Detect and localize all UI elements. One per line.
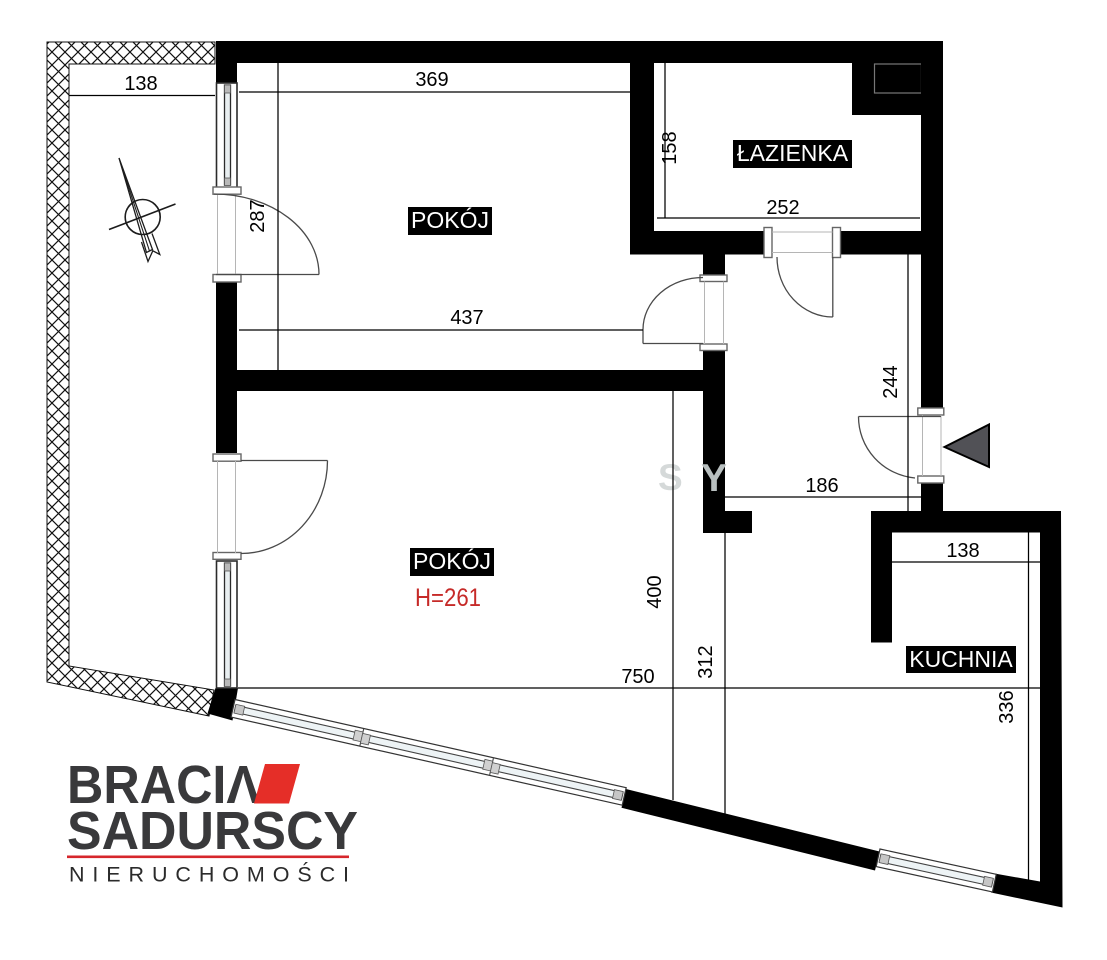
svg-text:POKÓJ: POKÓJ — [411, 207, 489, 233]
svg-text:312: 312 — [695, 645, 717, 678]
svg-text:287: 287 — [247, 199, 269, 232]
svg-text:336: 336 — [996, 690, 1018, 723]
svg-text:Y: Y — [701, 457, 727, 500]
svg-text:437: 437 — [450, 307, 483, 329]
svg-text:750: 750 — [621, 666, 654, 688]
svg-text:KUCHNIA: KUCHNIA — [909, 646, 1013, 672]
svg-text:158: 158 — [659, 131, 681, 164]
svg-text:POKÓJ: POKÓJ — [413, 548, 491, 574]
svg-text:138: 138 — [124, 73, 157, 95]
svg-text:400: 400 — [644, 575, 666, 608]
svg-text:H=261: H=261 — [415, 584, 481, 612]
svg-text:138: 138 — [946, 540, 979, 562]
svg-text:SADURSCY: SADURSCY — [67, 801, 358, 861]
svg-text:NIERUCHOMOŚCI: NIERUCHOMOŚCI — [69, 862, 349, 887]
svg-text:ŁAZIENKA: ŁAZIENKA — [737, 140, 849, 166]
svg-text:369: 369 — [415, 69, 448, 91]
svg-text:S: S — [658, 457, 683, 498]
svg-text:252: 252 — [766, 197, 799, 219]
svg-text:186: 186 — [805, 475, 838, 497]
svg-text:244: 244 — [880, 365, 902, 398]
